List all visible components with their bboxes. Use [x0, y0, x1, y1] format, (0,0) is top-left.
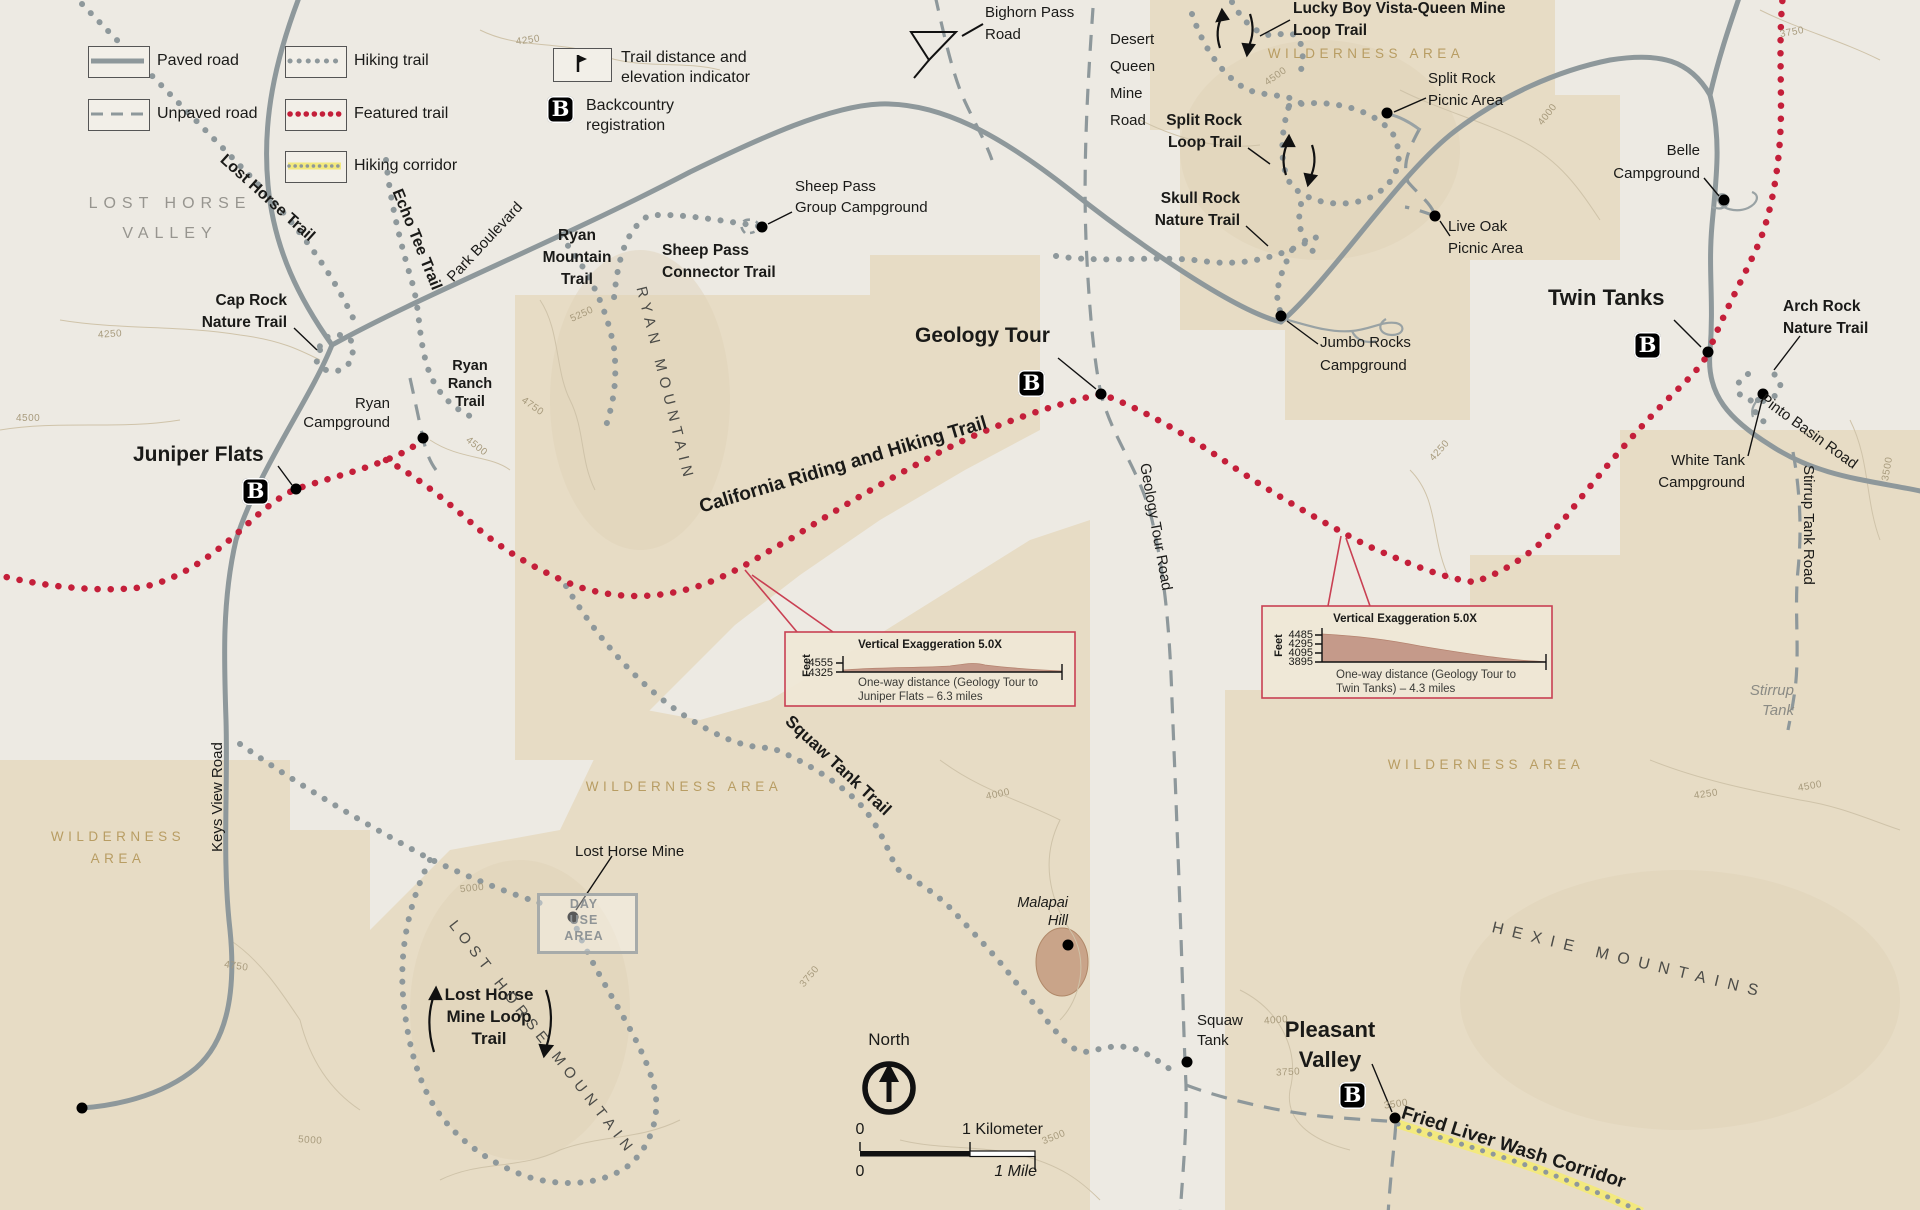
label-ryan-campground: Campground: [303, 415, 390, 430]
scale-one-km: 1 Kilometer: [962, 1122, 1043, 1138]
profile-left-tick: 4325: [809, 668, 833, 679]
label-ryan-ranch-trail: Trail: [455, 395, 485, 410]
legend-corridor-swatch: [285, 151, 347, 183]
profile-left-caption: One-way distance (Geology Tour to: [858, 678, 1038, 690]
contour-label: 4000: [1264, 1015, 1289, 1027]
label-live-oak-picnic: Live Oak: [1448, 219, 1507, 234]
label-pleasant-valley: Valley: [1299, 1049, 1361, 1071]
label-jumbo-rocks: Jumbo Rocks: [1320, 335, 1411, 350]
legend-indicator-swatch: [553, 48, 612, 82]
label-keys-view-road: Keys View Road: [210, 742, 225, 852]
label-ryan-ranch-trail: Ranch: [448, 377, 492, 392]
legend-featured-label: Featured trail: [354, 106, 448, 122]
legend-unpaved-label: Unpaved road: [157, 106, 258, 122]
label-cap-rock: Nature Trail: [202, 315, 287, 331]
legend-unpaved-swatch: [88, 99, 150, 131]
label-white-tank: Campground: [1658, 475, 1745, 490]
north-label: North: [868, 1031, 910, 1048]
legend-hiking-label: Hiking trail: [354, 53, 429, 69]
label-ryan-campground: Ryan: [355, 396, 390, 411]
label-desert-queen-mine-road: Queen: [1110, 59, 1155, 74]
label-lost-horse-mine-loop: Trail: [472, 1030, 507, 1047]
label-wilderness-left: WILDERNESS: [51, 830, 185, 844]
label-twin-tanks: Twin Tanks: [1548, 287, 1665, 309]
legend-indicator-label: Trail distance and: [621, 50, 747, 66]
profile-left-title: Vertical Exaggeration 5.0X: [858, 640, 1002, 652]
label-ryan-mountain-trail: Trail: [561, 272, 593, 288]
label-day-use-area: DAY: [570, 898, 598, 911]
profile-left-caption: Juniper Flats – 6.3 miles: [858, 692, 983, 704]
label-wilderness-left: AREA: [91, 852, 146, 866]
pinto-basin-road-north: [1710, 0, 1740, 95]
label-stirrup-tank: Stirrup: [1750, 683, 1794, 698]
label-day-use-area: USE: [570, 914, 599, 927]
bighorn-pass-road: [935, 0, 992, 160]
label-malapai-hill: Malapai: [1017, 896, 1068, 911]
label-ryan-mountain-trail: Ryan: [558, 228, 596, 244]
malapai-hill-relief: [1036, 928, 1088, 996]
label-ryan-mountain-trail: Mountain: [543, 250, 612, 266]
label-wilderness-right: WILDERNESS AREA: [1388, 758, 1585, 772]
label-jumbo-rocks: Campground: [1320, 358, 1407, 373]
legend-backcountry-icon: B: [547, 96, 574, 123]
label-desert-queen-mine-road: Desert: [1110, 32, 1154, 47]
label-lucky-boy-loop: Lucky Boy Vista-Queen Mine: [1293, 1, 1505, 17]
label-skull-rock-trail: Skull Rock: [1161, 191, 1240, 207]
label-geology-tour: Geology Tour: [915, 325, 1050, 346]
scale-one-mi: 1 Mile: [994, 1164, 1037, 1180]
contour-label: 4250: [98, 329, 123, 341]
label-split-rock-picnic: Split Rock: [1428, 71, 1496, 86]
desert-queen-geology-tour-road: [1085, 8, 1186, 1210]
twin-tanks-backcountry-icon: B: [1634, 332, 1661, 359]
label-bighorn-pass-road: Road: [985, 27, 1021, 42]
label-malapai-hill: Hill: [1048, 914, 1068, 929]
label-squaw-tank: Squaw: [1197, 1013, 1243, 1028]
geology-tour-backcountry-icon: B: [1018, 370, 1045, 397]
label-live-oak-picnic: Picnic Area: [1448, 241, 1523, 256]
contour-label: 5000: [298, 1135, 323, 1147]
label-sheep-pass-connector: Sheep Pass: [662, 243, 749, 259]
label-juniper-flats: Juniper Flats: [133, 444, 264, 465]
ryan-campground-spur: [410, 378, 436, 470]
profile-right-title: Vertical Exaggeration 5.0X: [1333, 614, 1477, 626]
scale-zero-km: 0: [856, 1122, 865, 1138]
label-sheep-pass-campground: Group Campground: [795, 200, 928, 215]
legend-backcountry-label: registration: [586, 118, 665, 134]
park-trail-map: B Paved road Unpaved road Hiking trail F…: [0, 0, 1920, 1210]
label-arch-rock: Arch Rock: [1783, 299, 1861, 315]
label-cap-rock: Cap Rock: [216, 293, 288, 309]
label-sheep-pass-connector: Connector Trail: [662, 265, 776, 281]
label-arch-rock: Nature Trail: [1783, 321, 1868, 337]
label-lost-horse-valley: VALLEY: [122, 226, 217, 242]
label-white-tank: White Tank: [1671, 453, 1745, 468]
label-ryan-ranch-trail: Ryan: [452, 359, 487, 374]
label-lost-horse-mine: Lost Horse Mine: [575, 844, 684, 859]
label-squaw-tank: Tank: [1197, 1033, 1229, 1048]
label-belle-campground: Campground: [1613, 166, 1700, 181]
label-split-rock-picnic: Picnic Area: [1428, 93, 1503, 108]
label-day-use-area: AREA: [564, 930, 603, 943]
label-skull-rock-trail: Nature Trail: [1155, 213, 1240, 229]
juniper-flats-backcountry-icon: B: [242, 478, 269, 505]
label-bighorn-pass-road: Bighorn Pass: [985, 5, 1074, 20]
label-pleasant-valley: Pleasant: [1285, 1019, 1376, 1041]
profile-right-caption: Twin Tanks) – 4.3 miles: [1336, 684, 1455, 696]
label-sheep-pass-campground: Sheep Pass: [795, 179, 876, 194]
legend-paved-label: Paved road: [157, 53, 239, 69]
legend-featured-swatch: [285, 99, 347, 131]
legend-backcountry-label: Backcountry: [586, 98, 674, 114]
pleasant-valley-backcountry-icon: B: [1339, 1082, 1366, 1109]
contour-label: 4500: [16, 414, 40, 424]
label-stirrup-tank-road: Stirrup Tank Road: [1801, 465, 1816, 585]
label-split-rock-loop: Loop Trail: [1168, 135, 1242, 151]
label-desert-queen-mine-road: Road: [1110, 113, 1146, 128]
profile-right-tick: 3895: [1289, 657, 1313, 668]
profile-right-feet: Feet: [1274, 634, 1285, 657]
scale-zero-mi: 0: [856, 1164, 865, 1180]
legend-paved-swatch: [88, 46, 150, 78]
label-lost-horse-valley: LOST HORSE: [89, 196, 252, 212]
label-desert-queen-mine-road: Mine: [1110, 86, 1143, 101]
label-wilderness-top-right: WILDERNESS AREA: [1268, 47, 1465, 61]
legend-hiking-swatch: [285, 46, 347, 78]
contour-label: 3750: [1276, 1067, 1301, 1078]
legend-corridor-label: Hiking corridor: [354, 158, 457, 174]
label-stirrup-tank: Tank: [1762, 703, 1794, 718]
label-lucky-boy-loop: Loop Trail: [1293, 23, 1367, 39]
profile-right-caption: One-way distance (Geology Tour to: [1336, 670, 1516, 682]
legend-indicator-label: elevation indicator: [621, 70, 750, 86]
label-split-rock-loop: Split Rock: [1166, 113, 1242, 129]
label-belle-campground: Belle: [1667, 143, 1700, 158]
label-wilderness-center: WILDERNESS AREA: [586, 780, 783, 794]
